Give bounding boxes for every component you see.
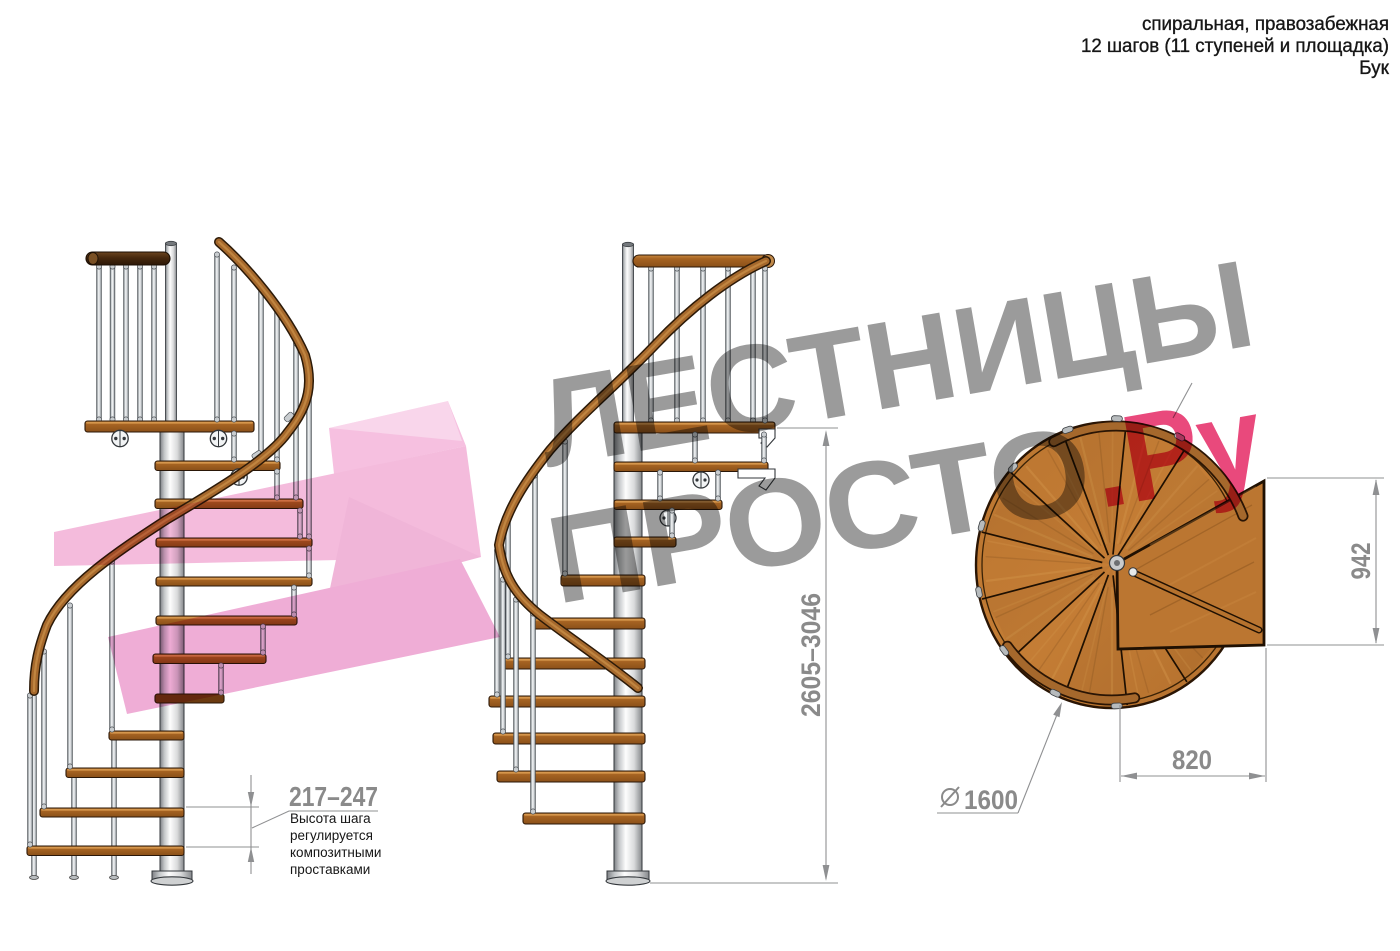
svg-text:композитными: композитными (290, 845, 381, 860)
svg-text:217–247: 217–247 (289, 781, 378, 812)
svg-text:Бук: Бук (1359, 58, 1390, 79)
svg-text:.Ру: .Ру (1081, 369, 1272, 534)
svg-text:2605–3046: 2605–3046 (796, 593, 826, 717)
svg-text:820: 820 (1172, 745, 1212, 775)
svg-text:спиральная, правозабежная: спиральная, правозабежная (1142, 14, 1389, 35)
svg-text:12 шагов (11 ступеней и площад: 12 шагов (11 ступеней и площадка) (1081, 36, 1389, 57)
svg-text:регулируется: регулируется (290, 828, 373, 843)
svg-text:1600: 1600 (964, 785, 1018, 815)
svg-text:проставками: проставками (290, 862, 370, 877)
svg-text:942: 942 (1346, 543, 1376, 580)
svg-text:Высота шага: Высота шага (290, 811, 371, 826)
